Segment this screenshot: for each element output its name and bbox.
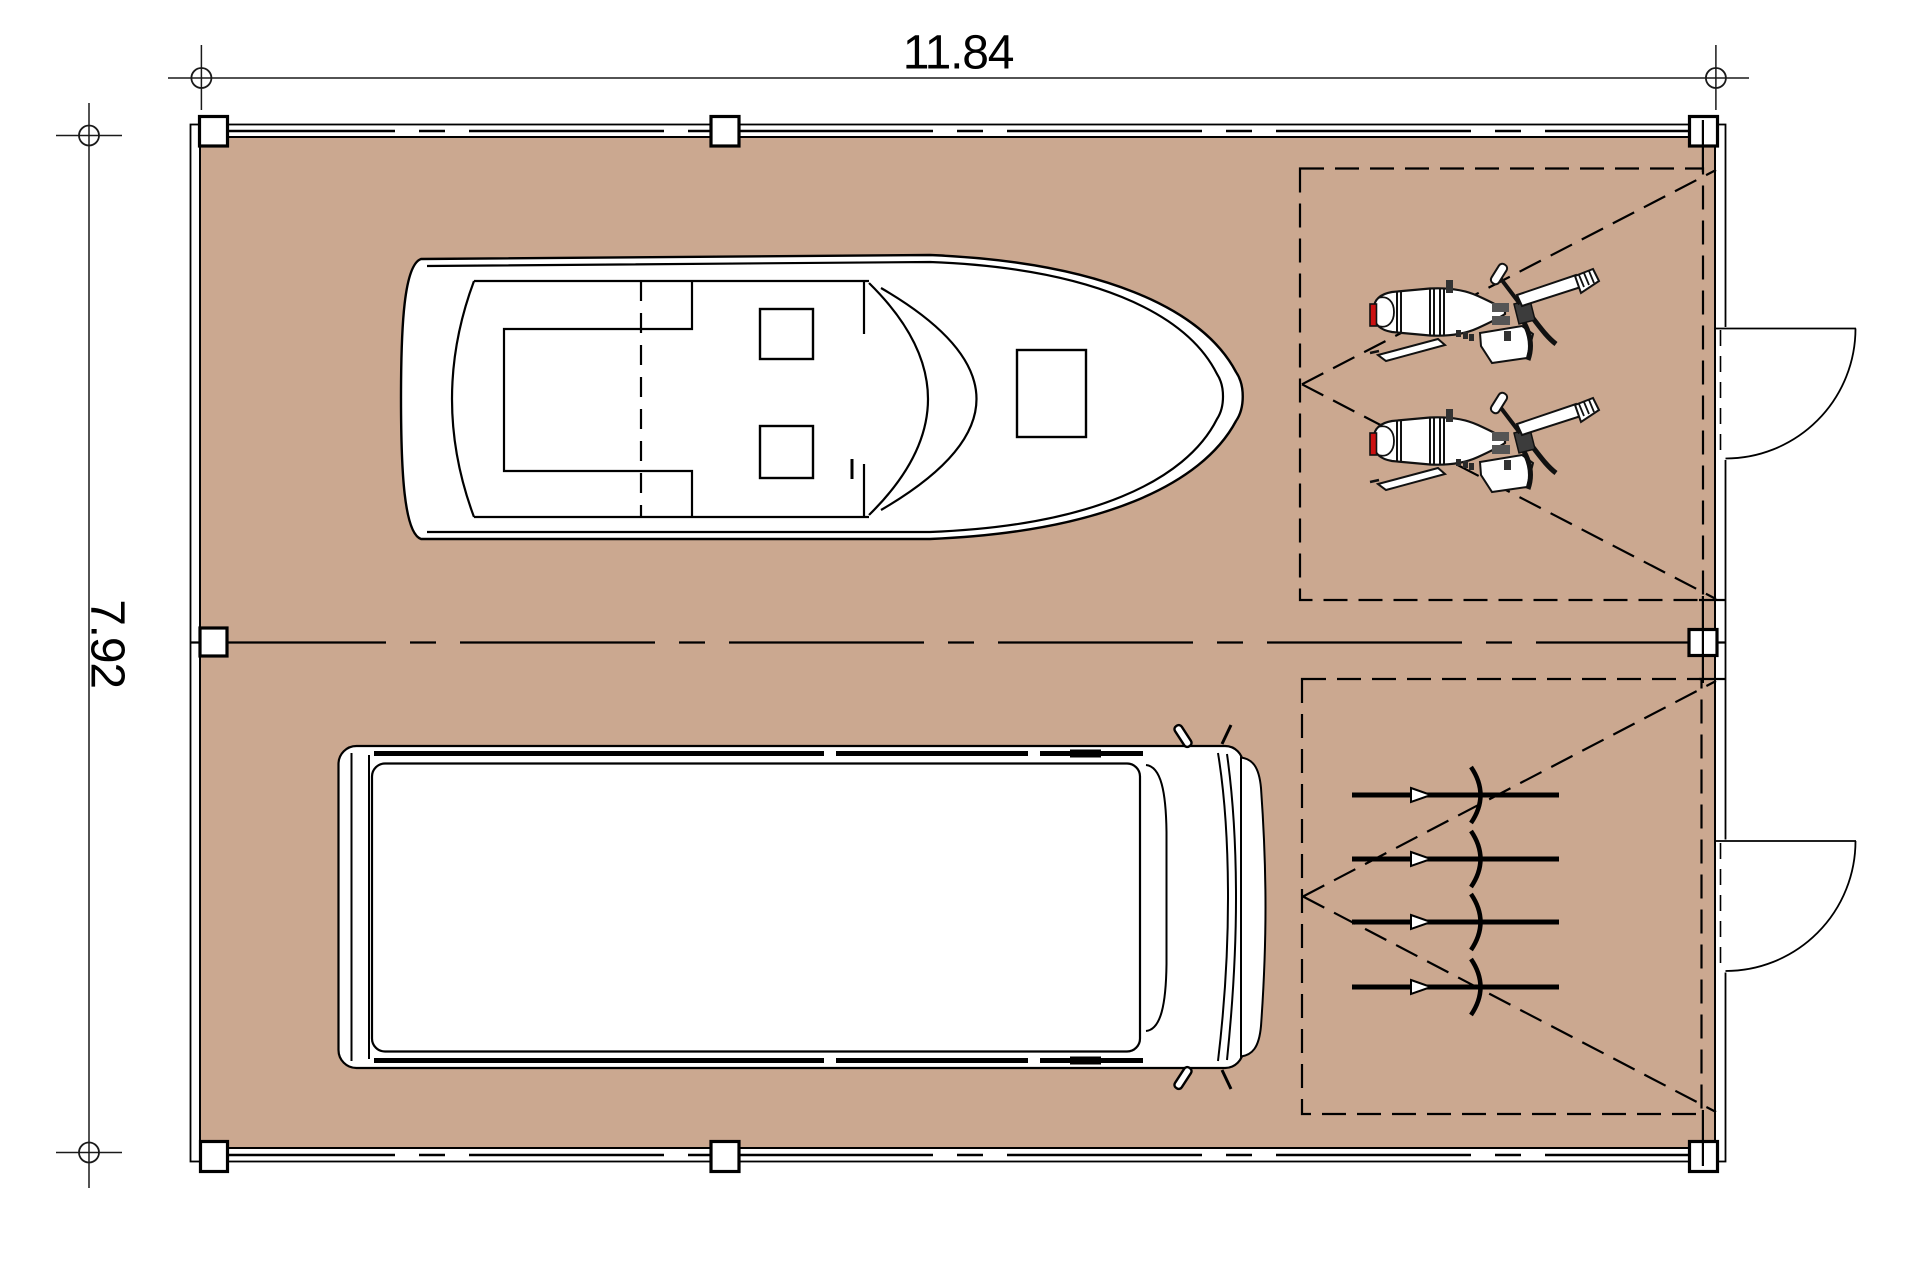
svg-text:7.92: 7.92 (81, 599, 134, 688)
svg-text:11.84: 11.84 (903, 27, 1014, 80)
